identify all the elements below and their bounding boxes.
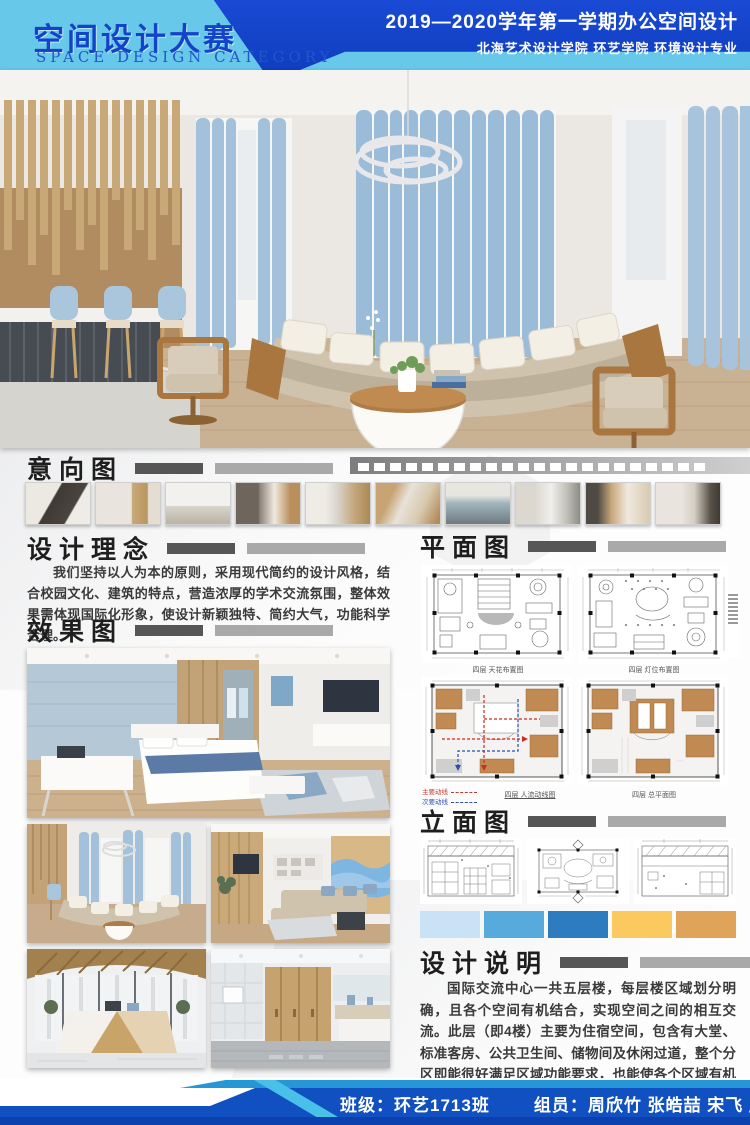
footer-bottom-strip [0,1117,750,1125]
poster: 空间设计大赛 SPACE DESIGN CATEGORY 2019—2020学年… [0,0,750,1125]
intent-thumb-4 [235,482,301,525]
school-line: 北海艺术设计学院 环艺学院 环境设计专业 [385,38,738,57]
term-title: 2019—2020学年第一学期办公空间设计 [385,7,738,34]
elevation-index-plan [527,838,629,904]
section-intent-header: 意向图 [27,450,333,486]
footer-banner: 班级：环艺1713班 组员：周欣竹 张皓喆 宋飞 唐羽 [0,1078,750,1125]
plan-caption-2: 四层 灯位布置图 [594,665,714,675]
intent-thumbnails [25,482,725,525]
renders-title: 效果图 [27,612,123,648]
plan-ceiling [422,565,572,663]
poster-title-en: SPACE DESIGN CATEGORY [36,48,334,66]
header-right-block: 2019—2020学年第一学期办公空间设计 北海艺术设计学院 环艺学院 环境设计… [385,7,738,57]
concept-title: 设计理念 [27,530,155,566]
intent-thumb-10 [655,482,721,525]
header-banner: 空间设计大赛 SPACE DESIGN CATEGORY 2019—2020学年… [0,0,750,70]
intent-thumb-9 [585,482,651,525]
film-strip-decoration [350,457,750,474]
section-renders-header: 效果图 [27,612,333,648]
title-bar-dark [167,543,235,554]
plan-lighting [578,565,728,663]
color-palette [420,911,738,938]
palette-swatch-5 [676,911,736,938]
render-lounge-curtains [27,824,206,943]
plan-circulation [422,677,572,785]
members-label: 组员：周欣竹 张皓喆 宋飞 唐羽 [534,1091,750,1116]
intent-thumb-6 [375,482,441,525]
title-bar-dark [528,541,596,552]
elevation-b [634,838,736,904]
plan-caption-1: 四层 天花布置图 [438,665,558,675]
intent-thumb-3 [165,482,231,525]
footer-credits: 班级：环艺1713班 组员：周欣竹 张皓喆 宋飞 唐羽 [340,1091,740,1116]
title-bar-light [215,625,333,636]
title-bar-dark [528,816,596,827]
elevation-a [420,838,522,904]
render-bathroom [211,949,390,1068]
title-bar-light [640,957,750,968]
plan-legend-key [726,592,740,658]
title-bar-dark [135,463,203,474]
title-bar-light [608,816,726,827]
section-description-header: 设计说明 [420,944,750,980]
section-elevations-header: 立面图 [420,803,726,839]
elevations-title: 立面图 [420,803,516,839]
render-reception [27,949,206,1068]
intent-thumb-5 [305,482,371,525]
title-bar-dark [560,957,628,968]
intent-thumb-2 [95,482,161,525]
legend-primary-label: 主要动线 [422,788,448,798]
section-plans-header: 平面图 [420,528,726,564]
palette-swatch-4 [612,911,672,938]
render-bedroom [27,648,390,818]
palette-swatch-2 [484,911,544,938]
title-bar-light [608,541,726,552]
plan-overall [578,677,728,785]
plan-caption-4: 四层 总平面图 [594,790,714,800]
palette-swatch-1 [420,911,480,938]
hero-render-lobby [0,70,750,448]
intent-thumb-1 [25,482,91,525]
title-bar-dark [135,625,203,636]
palette-swatch-3 [548,911,608,938]
plan-caption-3: 四层 人流动线图 [470,790,590,800]
class-label: 班级：环艺1713班 [340,1091,490,1116]
intent-thumb-7 [445,482,511,525]
plans-title: 平面图 [420,528,516,564]
render-lounge-wave-wall [211,824,390,943]
title-bar-light [247,543,365,554]
intent-thumb-8 [515,482,581,525]
description-title: 设计说明 [420,944,548,980]
section-concept-header: 设计理念 [27,530,365,566]
title-bar-light [215,463,333,474]
intent-title: 意向图 [27,450,123,486]
legend-primary: 主要动线 [422,788,477,798]
